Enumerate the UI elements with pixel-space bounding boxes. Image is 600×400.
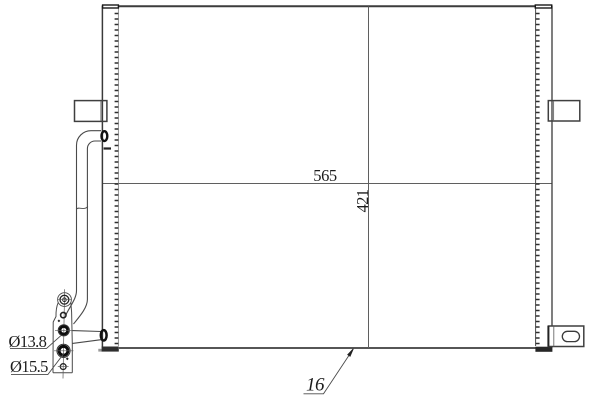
svg-text:565: 565 [313,166,337,185]
svg-text:Ø15.5: Ø15.5 [10,357,48,376]
svg-text:421: 421 [353,189,372,212]
svg-text:16: 16 [306,375,325,396]
